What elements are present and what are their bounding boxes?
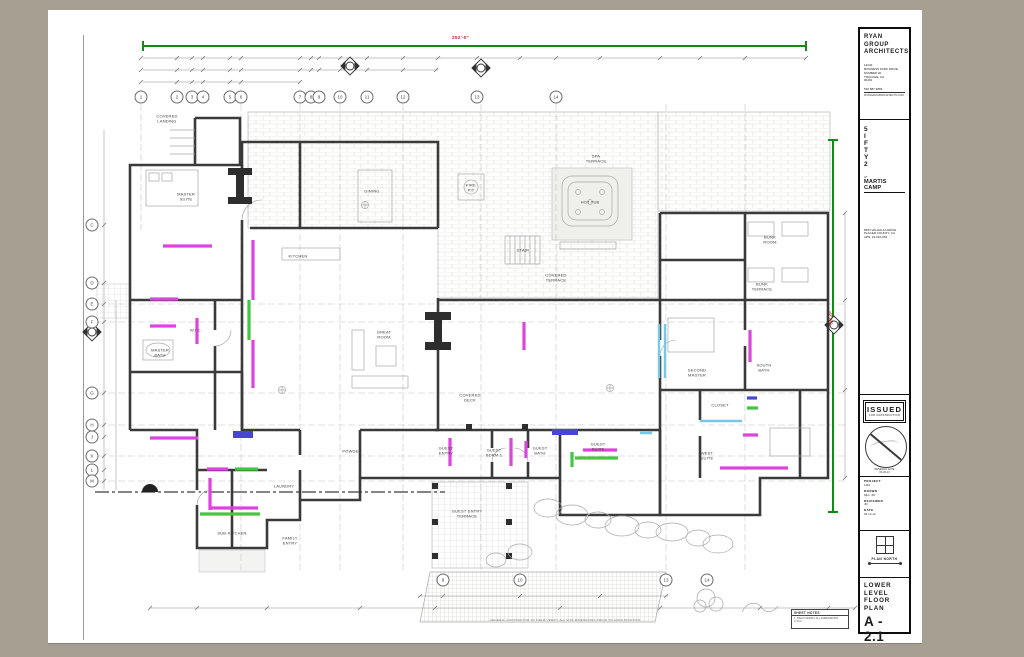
firm-phone: 530 587 3866 — [864, 87, 905, 91]
room-label: COVERED LANDING — [156, 114, 177, 123]
grid-bubble-6: 6 — [235, 91, 248, 104]
grid-bubble-D: D — [86, 277, 99, 290]
sheet-title-line: PLAN — [864, 605, 905, 613]
plan-north-label: PLAN NORTH — [860, 557, 909, 561]
room-label: GREAT ROOM — [377, 330, 391, 339]
plan-north-section: PLAN NORTH — [860, 530, 909, 577]
grid-bubble-J: J — [86, 431, 99, 444]
grid-bubble-14: 14 — [701, 574, 714, 587]
room-label: HOT TUB — [581, 201, 600, 206]
right-dimension-label: 86'-0" — [829, 310, 834, 324]
grid-bubble-11: 11 — [361, 91, 374, 104]
firm-name-line: RYAN — [864, 34, 905, 42]
room-label: GUEST ENTRY TERRACE — [452, 509, 483, 518]
room-label: KITCHEN — [289, 255, 308, 260]
room-label: GUEST ENTRY — [439, 446, 454, 455]
project-letter: T — [864, 147, 905, 154]
room-label: LAUNDRY — [274, 485, 294, 490]
room-label: MASTER BATH — [151, 348, 169, 357]
grid-bubble-13: 13 — [660, 574, 673, 587]
room-label: W.I.C. — [190, 329, 202, 334]
drawing-viewport: 252'-0" 86'-0" SHEET NOTES 1. FIELD VERI… — [0, 0, 1024, 657]
firm-address: 12242BUSINESS PARK DRIVENUMBER 20TRUCKEE… — [864, 64, 905, 84]
grid-bubble-8: 8 — [437, 574, 450, 587]
room-label: COVERED DECK — [459, 393, 480, 402]
issued-section: ISSUED FOR CONSTRUCTION RENEWAL DATE06-3… — [860, 394, 909, 476]
firm-address-line: 96161 — [864, 79, 905, 83]
plan-north-symbol — [876, 536, 894, 554]
room-label: FIRE PIT — [466, 183, 476, 192]
grid-bubble-12: 12 — [397, 91, 410, 104]
field-value: 05.14.12 — [864, 513, 905, 517]
sheet-title-line: LEVEL — [864, 590, 905, 598]
sheet-notes-line: 1. FIELD VERIFY ALL DIMENSIONS U.N.O. — [792, 616, 848, 624]
grid-bubble-K: K — [86, 450, 99, 463]
room-label: FAMILY ENTRY — [282, 536, 297, 545]
room-label: SECOND MASTER — [688, 368, 706, 377]
room-label: SPA TERRACE — [586, 154, 607, 163]
room-label: BUNK ROOM — [763, 235, 776, 244]
room-label: GUEST BDRM 1 — [486, 448, 502, 457]
architect-stamp — [865, 426, 907, 468]
fields-section: PROJECT1110DRAWNMH / JRREVIEWEDJRDATE05.… — [860, 476, 909, 530]
sheet-title: LOWERLEVELFLOORPLAN — [864, 582, 905, 612]
field-value: MH / JR — [864, 494, 905, 498]
overall-dimension-label: 252'-0" — [452, 35, 469, 40]
field-value: 1110 — [864, 484, 905, 488]
firm-section: RYANGROUPARCHITECTS 12242BUSINESS PARK D… — [860, 29, 909, 120]
room-label: STAIR — [517, 249, 529, 254]
scale-bar — [869, 563, 901, 572]
room-label: COVERED TERRACE — [545, 273, 566, 282]
project-section: 5IFTY2 AT MARTIS CAMP 8354 VALHALLA DRIV… — [860, 122, 909, 394]
project-letter: 2 — [864, 161, 905, 168]
grid-bubble-1: 1 — [135, 91, 148, 104]
project-name-vertical: 5IFTY2 — [864, 126, 905, 168]
grid-bubble-10: 10 — [334, 91, 347, 104]
grid-bubble-C: C — [86, 219, 99, 232]
stamp-line: 06-30-13 — [860, 471, 909, 474]
field-value: JR — [864, 503, 905, 507]
sheet-title-line: FLOOR — [864, 597, 905, 605]
stamp-renewal: RENEWAL DATE06-30-13 — [860, 468, 909, 474]
grid-bubble-10: 10 — [514, 574, 527, 587]
sheet-number: A - 2.1 — [864, 614, 905, 644]
grid-bubble-F: F — [86, 316, 99, 329]
room-label: BUNK TERRACE — [752, 282, 773, 291]
issued-box-inner: ISSUED FOR CONSTRUCTION — [865, 402, 903, 420]
grid-bubble-G: G — [86, 387, 99, 400]
room-label: WEST SUITE — [701, 451, 714, 460]
grid-bubble-4: 4 — [197, 91, 210, 104]
title-block: RYANGROUPARCHITECTS 12242BUSINESS PARK D… — [858, 27, 911, 634]
sheet-title-section: LOWERLEVELFLOORPLAN A - 2.1 — [860, 577, 909, 634]
grid-bubble-14: 14 — [550, 91, 563, 104]
sheet-title-line: LOWER — [864, 582, 905, 590]
issued-label: ISSUED — [866, 405, 902, 414]
room-label: CLOSET — [711, 404, 728, 409]
room-label: GUEST BATH — [533, 446, 548, 455]
firm-name: RYANGROUPARCHITECTS — [864, 34, 905, 57]
grid-bubble-13: 13 — [471, 91, 484, 104]
project-community: MARTIS CAMP — [864, 179, 905, 193]
room-label: SOUTH BATH — [757, 363, 772, 372]
project-address-line: APN: 19-010-052 — [864, 236, 905, 240]
grid-bubble-E: E — [86, 298, 99, 311]
room-label: POWDER — [342, 450, 361, 455]
room-label: GUEST SUITE — [591, 442, 606, 451]
firm-name-line: GROUP — [864, 42, 905, 50]
project-letter: F — [864, 140, 905, 147]
room-label: SUB-KITCHEN — [217, 532, 246, 537]
grid-bubble-9: 9 — [313, 91, 326, 104]
sheet-notes-box: SHEET NOTES 1. FIELD VERIFY ALL DIMENSIO… — [791, 609, 849, 629]
issued-sub-label: FOR CONSTRUCTION — [866, 414, 902, 417]
project-letter: 5 — [864, 126, 905, 133]
grid-bubble-2: 2 — [171, 91, 184, 104]
project-address: 8354 VALHALLA DRIVEPLACER COUNTY, CAAPN:… — [864, 229, 905, 241]
grid-bubble-M: M — [86, 475, 99, 488]
project-letter: Y — [864, 154, 905, 161]
project-letter: I — [864, 133, 905, 140]
general-note: GENERAL CONTRACTOR TO FIELD VERIFY ALL S… — [455, 618, 675, 622]
issued-box: ISSUED FOR CONSTRUCTION — [863, 400, 906, 423]
room-label: DINING — [364, 190, 379, 195]
firm-name-line: ARCHITECTS — [864, 49, 905, 57]
room-label: MASTER SUITE — [177, 192, 195, 201]
firm-website: RYANGROUPARCHITECTS.COM — [864, 92, 905, 97]
